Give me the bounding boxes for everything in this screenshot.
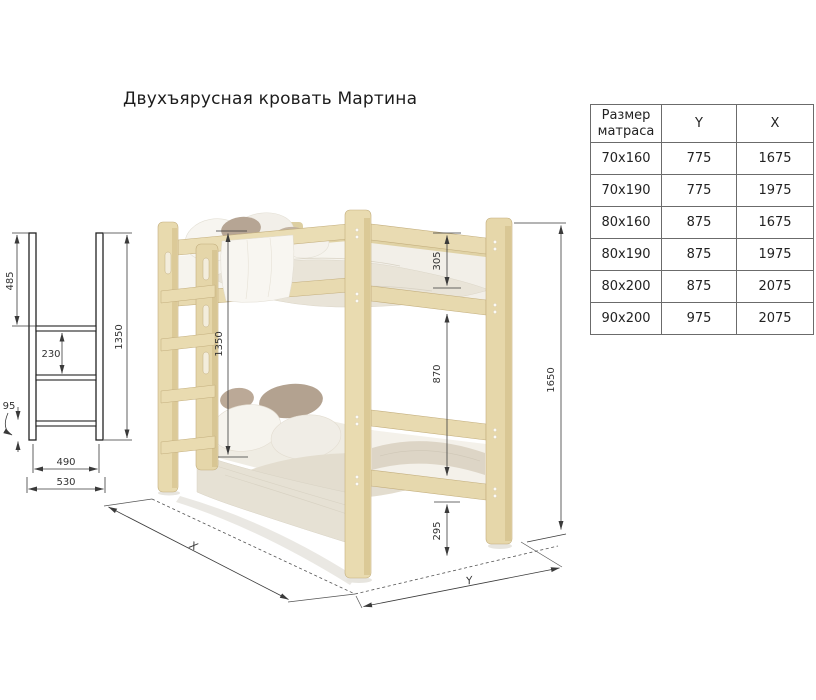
bed-dim-y: Y: [465, 574, 475, 587]
ladder-dim-95: 95: [3, 401, 16, 412]
bed-dim-1350: 1350: [214, 331, 225, 356]
ladder-dim-230: 230: [41, 349, 60, 360]
ladder-rung: [36, 375, 96, 380]
ladder-rung: [36, 421, 96, 426]
ladder-dim-490: 490: [56, 457, 75, 468]
ladder-handle-slot: [203, 305, 209, 327]
ladder-dimensions: 485 230 95 1350 490 530: [3, 233, 132, 493]
ladder-right-rail: [96, 233, 103, 440]
bed-dim-305: 305: [432, 251, 443, 270]
ladder-handle-slot: [203, 352, 209, 374]
bed-illustration: [158, 209, 512, 585]
bed-technical-drawing: 485 230 95 1350 490 530: [0, 0, 816, 700]
bed-dim-295: 295: [432, 521, 443, 540]
ladder-schematic: [29, 233, 103, 440]
bed-dim-1650: 1650: [546, 367, 557, 392]
ladder-handle-slot: [203, 258, 209, 280]
ladder-dim-485: 485: [5, 271, 16, 290]
ladder-dim-530: 530: [56, 477, 75, 488]
ladder-handle-slot: [165, 252, 171, 274]
technical-drawing-page: Двухъярусная кровать Мартина Размер матр…: [0, 0, 816, 700]
ladder-left-rail: [29, 233, 36, 440]
bed-dim-x: X: [187, 539, 200, 554]
ladder-rung: [36, 326, 96, 331]
ladder-dim-1350: 1350: [114, 324, 125, 349]
upper-bunk-drape: [221, 235, 294, 302]
bed-dim-870: 870: [432, 364, 443, 383]
